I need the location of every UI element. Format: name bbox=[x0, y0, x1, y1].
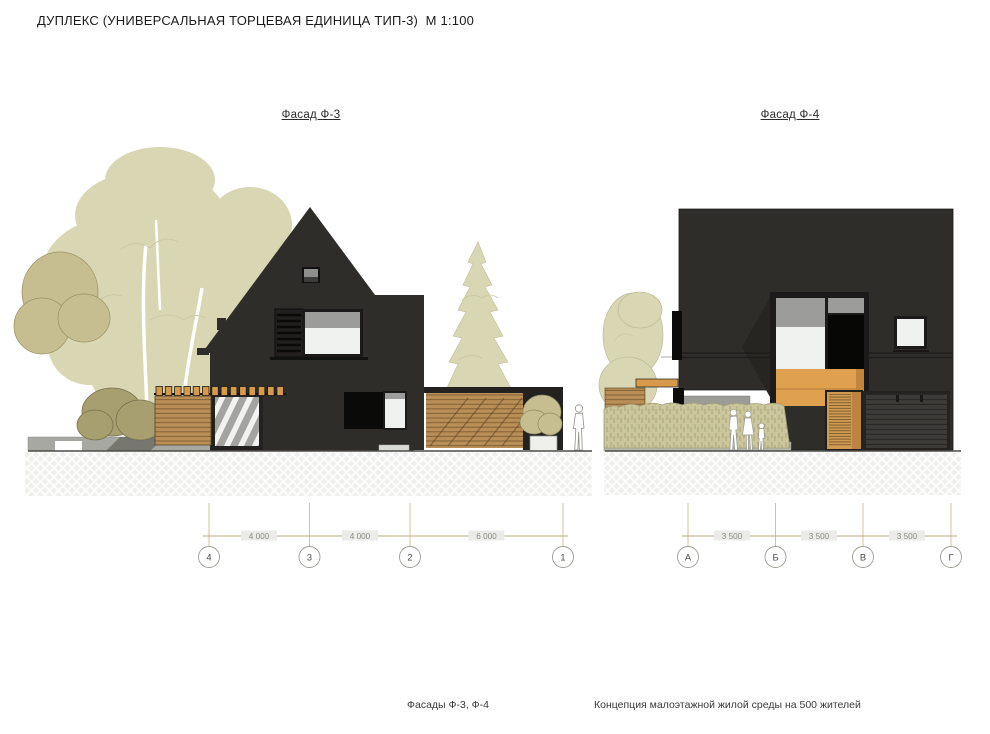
dimensions-f3: 4 000 4 000 6 000 4 3 2 1 bbox=[199, 503, 574, 568]
dim-f3-2: 4 000 bbox=[350, 532, 371, 541]
window-bay bbox=[770, 292, 869, 406]
dimensions-f4: 3 500 3 500 3 500 А Б В Г bbox=[678, 503, 962, 568]
drawing-sheet: ДУПЛЕКС (УНИВЕРСАЛЬНАЯ ТОРЦЕВАЯ ЕДИНИЦА … bbox=[0, 0, 990, 734]
dim-f4-3: 3 500 bbox=[897, 532, 918, 541]
axis-circle-a: А bbox=[685, 553, 692, 563]
small-window bbox=[893, 316, 929, 351]
axis-circle-2: 2 bbox=[407, 553, 412, 563]
garage-door bbox=[863, 391, 950, 451]
facade-f4-drawing bbox=[599, 209, 961, 495]
planter-box bbox=[530, 436, 557, 451]
eave-right bbox=[412, 348, 424, 355]
project-caption: Концепция малоэтажной жилой среды на 500… bbox=[594, 699, 861, 711]
dim-f3-1: 4 000 bbox=[249, 532, 270, 541]
axis-circle-1: 1 bbox=[560, 553, 565, 563]
dim-f4-1: 3 500 bbox=[722, 532, 743, 541]
axis-circle-g: Г bbox=[948, 553, 953, 563]
axis-circle-3: 3 bbox=[307, 553, 312, 563]
axis-circle-v: В bbox=[860, 553, 866, 563]
axis-circle-4: 4 bbox=[206, 553, 211, 563]
axis-circle-b: Б bbox=[772, 553, 778, 563]
elevation-drawing: 4 000 4 000 6 000 4 3 2 1 3 500 bbox=[0, 0, 990, 734]
person-figure bbox=[574, 405, 585, 450]
wood-door bbox=[825, 390, 863, 451]
facade-fin bbox=[672, 311, 682, 360]
main-window-louvers bbox=[275, 309, 303, 357]
gable-window bbox=[302, 267, 320, 283]
left-wood-fence bbox=[155, 396, 211, 445]
wood-beam-f4 bbox=[636, 379, 678, 387]
ground-hatch-left bbox=[25, 452, 592, 496]
entry-window bbox=[344, 392, 384, 429]
recess-post bbox=[673, 388, 684, 405]
dim-f3-3: 6 000 bbox=[476, 532, 497, 541]
eave-left bbox=[197, 348, 209, 355]
roof-vent bbox=[217, 318, 226, 330]
facade-f3-drawing bbox=[14, 147, 592, 496]
drawing-caption: Фасады Ф-3, Ф-4 bbox=[407, 699, 489, 711]
ground-hatch-right bbox=[604, 452, 961, 495]
dim-f4-2: 3 500 bbox=[809, 532, 830, 541]
